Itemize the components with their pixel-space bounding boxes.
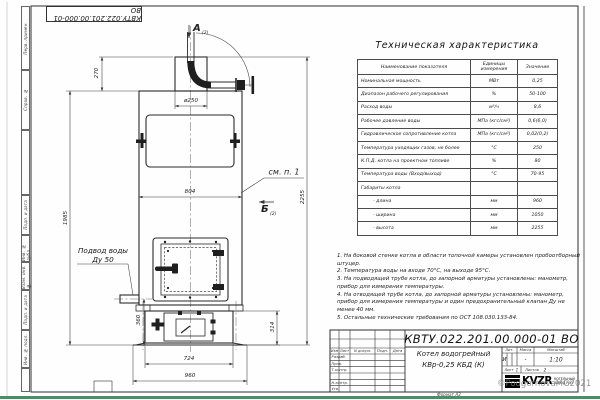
sheets-value: 2 bbox=[544, 367, 547, 372]
row-razrab: Разраб. bbox=[332, 355, 347, 359]
dimension-lines bbox=[70, 57, 307, 381]
lit-label: Лит. bbox=[505, 348, 514, 352]
col-value: Значение bbox=[518, 60, 558, 75]
margin-box: Перв. примен. bbox=[21, 6, 30, 70]
row-prov: Пров. bbox=[332, 362, 343, 366]
sheet-value: 1 bbox=[516, 367, 519, 372]
boiler-body bbox=[120, 32, 247, 345]
hdr-list: Лист bbox=[340, 349, 349, 353]
sheet-label: Лист bbox=[504, 368, 513, 372]
spec-row: - ширинамм1050 bbox=[358, 208, 558, 221]
margin-box: Взам. инв. № bbox=[21, 262, 30, 290]
spec-row: Диапазон рабочего регулирования%50-100 bbox=[358, 88, 558, 101]
spec-row: Гидравлическое сопротивление котлаМПа (к… bbox=[358, 128, 558, 141]
view-b-label: Б bbox=[261, 204, 269, 215]
scale-label: Масштаб bbox=[547, 348, 565, 352]
spec-title: Техническая характеристика bbox=[357, 40, 557, 51]
margin-box: Справ. № bbox=[21, 70, 30, 130]
technical-notes: 1. На боковой стенке котла в области топ… bbox=[337, 253, 580, 323]
col-name: Наименование показателя bbox=[358, 60, 471, 75]
spec-row: Габариты котла bbox=[358, 182, 558, 195]
dim-2255: 2255 bbox=[300, 190, 306, 204]
note-line: 3. На подводящей трубе котла, до запорно… bbox=[337, 276, 580, 291]
row-utv: Утв. bbox=[332, 387, 340, 391]
mass-value: - bbox=[525, 357, 527, 363]
doc-number-stamp: КВТУ.022.201.00.000-01 ВО bbox=[47, 6, 141, 22]
note-line: 5. Остальные технические требования по О… bbox=[337, 315, 580, 323]
dim-1985: 1985 bbox=[63, 211, 69, 225]
spec-row: Температура уходящих газов, не более°С25… bbox=[358, 141, 558, 154]
dim-250: ø250 bbox=[184, 98, 198, 104]
watermark: ©PodgornovaMG2021 bbox=[497, 379, 591, 389]
dim-804: 804 bbox=[185, 189, 196, 195]
spec-row: Номинальная мощностьМВт0,25 bbox=[358, 75, 558, 88]
lit-value: И bbox=[502, 357, 506, 363]
green-bar bbox=[0, 396, 600, 399]
margin-box: Инв. № подл. bbox=[21, 330, 30, 368]
water-inlet-label: Подвод воды Ду 50 bbox=[76, 246, 130, 264]
hdr-podp: Подп. bbox=[377, 349, 388, 353]
view-a-sub: (2) bbox=[202, 31, 208, 36]
dim-314: 314 bbox=[270, 322, 276, 333]
margin-box bbox=[21, 368, 30, 392]
product-title: Котел водогрейный КВр-0,25 КБД (К) bbox=[405, 349, 502, 371]
sheets-label: Листов bbox=[525, 368, 539, 372]
spec-row: Температура воды (Вход/выход)°С70-95 bbox=[358, 168, 558, 181]
dim-960: 960 bbox=[185, 373, 196, 379]
spec-row: - высотамм2255 bbox=[358, 222, 558, 235]
margin-box: Инв. № дубл. bbox=[21, 235, 30, 262]
note-line: 1. На боковой стенке котла в области топ… bbox=[337, 253, 580, 268]
see-note-label: см. п. 1 bbox=[269, 168, 300, 177]
hdr-data: Дата bbox=[393, 349, 403, 353]
doc-number: КВТУ.022.201.00.000-01 ВО bbox=[405, 330, 578, 347]
margin-box: Подп. и дата bbox=[21, 290, 30, 330]
spec-row: - длинамм960 bbox=[358, 195, 558, 208]
dim-360: 360 bbox=[136, 315, 142, 326]
margin-box bbox=[21, 130, 30, 195]
col-units: Единицы измерения bbox=[471, 60, 518, 75]
view-b-sub: (2) bbox=[270, 212, 276, 217]
scale-value: 1:10 bbox=[549, 356, 562, 363]
stamp-box: КВТУ.022.201.00.000-01 ВО bbox=[46, 6, 142, 22]
flue-elbow bbox=[191, 61, 211, 85]
row-tkontr: Т.контр. bbox=[332, 368, 348, 372]
note-line: 4. На отводящей трубе котла, до запорной… bbox=[337, 292, 580, 315]
margin-column: Перв. примен.Справ. №Подп. и датаИнв. № … bbox=[21, 6, 31, 392]
spec-table-rows: Номинальная мощностьМВт0,25Диапазон рабо… bbox=[358, 75, 558, 236]
mass-label: Масса bbox=[520, 348, 532, 352]
hdr-ndok: N докум. bbox=[354, 349, 371, 353]
view-a-label: А bbox=[193, 23, 201, 34]
row-nkontr: Н.контр. bbox=[332, 381, 349, 385]
spec-table: Наименование показателя Единицы измерени… bbox=[357, 59, 558, 236]
view-arrows bbox=[189, 25, 274, 202]
dim-724: 724 bbox=[184, 356, 195, 362]
dim-270: 270 bbox=[94, 68, 100, 79]
note-line: 2. Температура воды на входе 70°С, на вы… bbox=[337, 268, 580, 276]
spec-row: Рабочее давление водыМПа (кгс/см²)0,6(6,… bbox=[358, 115, 558, 128]
margin-box: Подп. и дата bbox=[21, 195, 30, 235]
spec-row: К.П.Д. котла на проектном топливе%80 bbox=[358, 155, 558, 168]
spec-row: Расход водым³/ч8,6 bbox=[358, 101, 558, 114]
drawing-sheet: Перв. примен.Справ. №Подп. и датаИнв. № … bbox=[0, 0, 600, 400]
hdr-izm: Изм bbox=[331, 349, 339, 353]
